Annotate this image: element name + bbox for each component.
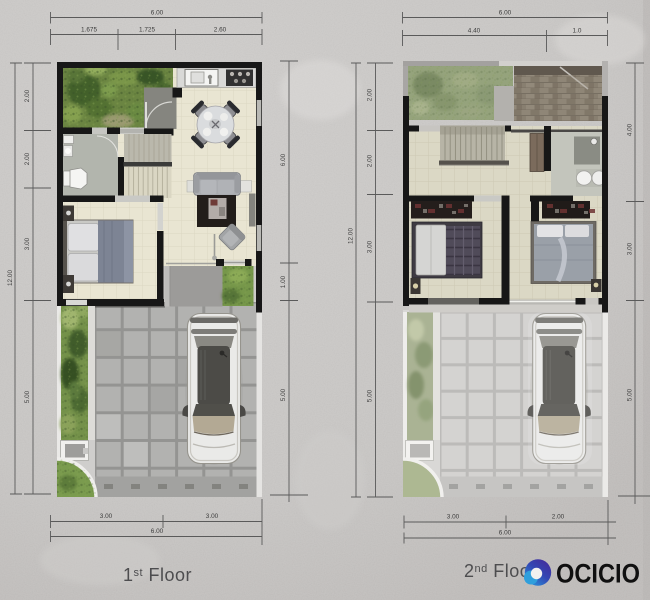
- svg-text:4.40: 4.40: [468, 28, 481, 35]
- svg-text:12.00: 12.00: [348, 228, 355, 244]
- svg-text:6.00: 6.00: [151, 10, 164, 17]
- svg-text:1st Floor: 1st Floor: [123, 565, 192, 585]
- svg-text:1.00: 1.00: [280, 275, 287, 288]
- svg-text:1.725: 1.725: [139, 27, 155, 34]
- svg-text:5.00: 5.00: [24, 390, 31, 403]
- svg-text:5.00: 5.00: [367, 389, 374, 402]
- svg-text:1.675: 1.675: [81, 27, 97, 34]
- svg-text:OCICIO: OCICIO: [556, 559, 640, 589]
- svg-text:5.00: 5.00: [627, 388, 634, 401]
- svg-text:6.00: 6.00: [151, 528, 164, 535]
- svg-text:2.00: 2.00: [24, 89, 31, 102]
- svg-text:3.00: 3.00: [447, 514, 460, 521]
- svg-text:2.00: 2.00: [367, 154, 374, 167]
- svg-text:1.0: 1.0: [573, 28, 582, 35]
- svg-text:2.00: 2.00: [552, 514, 565, 521]
- svg-text:2.60: 2.60: [214, 27, 227, 34]
- svg-text:2.00: 2.00: [24, 152, 31, 165]
- svg-text:5.00: 5.00: [280, 388, 287, 401]
- svg-text:3.00: 3.00: [206, 513, 219, 520]
- svg-text:3.00: 3.00: [367, 240, 374, 253]
- svg-text:3.00: 3.00: [627, 242, 634, 255]
- svg-text:2.00: 2.00: [367, 88, 374, 101]
- svg-text:6.00: 6.00: [499, 10, 512, 17]
- svg-text:12.00: 12.00: [7, 270, 14, 286]
- svg-text:3.00: 3.00: [100, 513, 113, 520]
- svg-text:4.00: 4.00: [627, 123, 634, 136]
- svg-text:6.00: 6.00: [499, 530, 512, 537]
- svg-text:6.00: 6.00: [280, 153, 287, 166]
- svg-text:3.00: 3.00: [24, 237, 31, 250]
